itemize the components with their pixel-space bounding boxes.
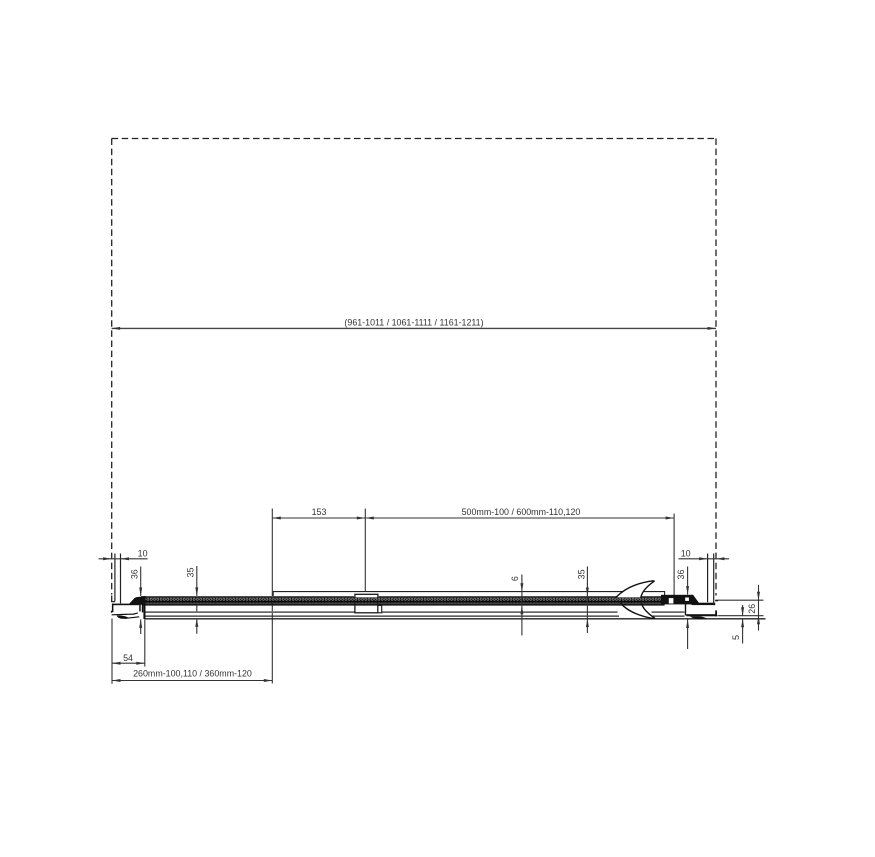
svg-text:36: 36 [129,569,139,579]
svg-text:26: 26 [747,604,757,614]
svg-text:35: 35 [185,568,195,578]
svg-text:10: 10 [681,549,691,559]
svg-text:35: 35 [577,569,587,579]
svg-text:(961-1011 / 1061-1111 / 1161-1: (961-1011 / 1061-1111 / 1161-1211) [344,317,483,327]
svg-text:153: 153 [312,507,327,517]
svg-text:36: 36 [676,570,686,580]
svg-text:54: 54 [123,653,133,663]
svg-text:5: 5 [731,635,741,640]
svg-text:500mm-100 / 600mm-110,120: 500mm-100 / 600mm-110,120 [462,507,581,517]
svg-text:6: 6 [510,576,520,581]
svg-text:10: 10 [138,549,148,559]
svg-text:260mm-100,110 / 360mm-120: 260mm-100,110 / 360mm-120 [133,669,252,679]
